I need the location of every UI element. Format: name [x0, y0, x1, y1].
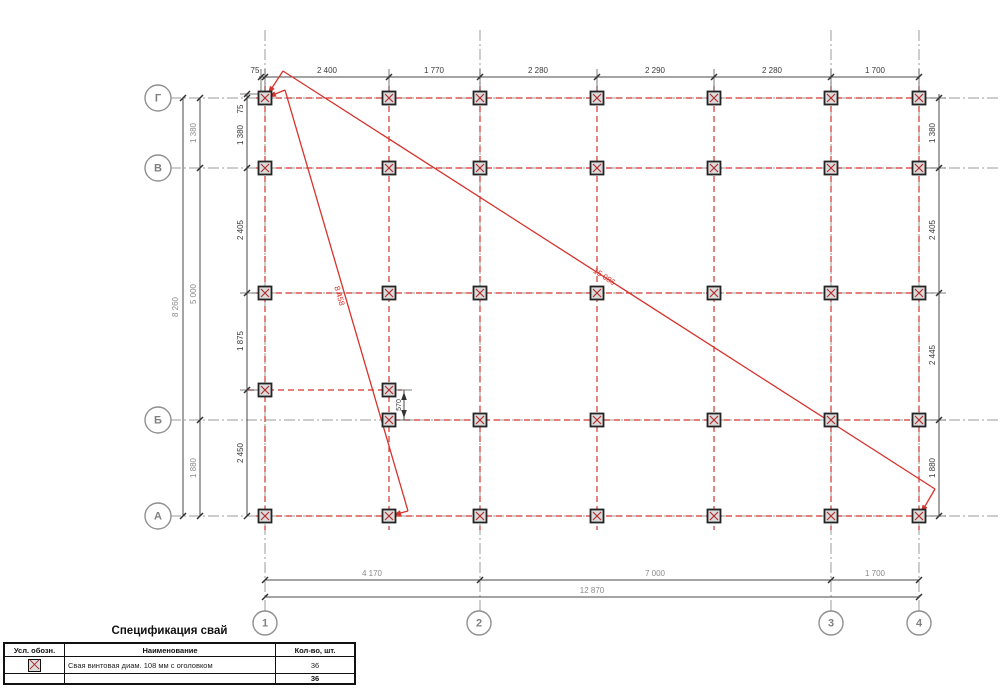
axis-label: А — [154, 510, 162, 522]
spec-total-row: 36 — [4, 674, 355, 685]
dimension-label: 1 380 — [236, 124, 245, 145]
spec-header-symbol: Усл. обозн. — [4, 643, 65, 657]
axis-label: 2 — [476, 617, 482, 629]
dimension-label: 2 280 — [528, 66, 549, 75]
axis-label: 4 — [916, 617, 923, 629]
dimension-label: 75 — [236, 104, 245, 113]
dimension-label: 1 380 — [928, 122, 937, 143]
axis-label: Б — [154, 414, 162, 426]
dimension-label: 570 — [396, 399, 403, 411]
axis-label: В — [154, 162, 162, 174]
dimension-label: 12 870 — [580, 586, 605, 595]
dimension-label: 2 405 — [236, 219, 245, 240]
spec-header-name: Наименование — [65, 643, 276, 657]
dimension-label: 8 458 — [332, 285, 346, 307]
dimension-label: 5 000 — [189, 283, 198, 304]
plan-drawing: ГВБА1234752 4001 7702 2802 2902 2801 700… — [0, 0, 1008, 690]
dimension-label: 2 445 — [928, 344, 937, 365]
dimension-label: 1 770 — [424, 66, 445, 75]
dimension-label: 1 700 — [865, 66, 886, 75]
dimension-label: 1 880 — [928, 457, 937, 478]
spec-header-row: Усл. обозн. Наименование Кол-во, шт. — [4, 643, 355, 657]
dimension-label: 1 875 — [236, 330, 245, 351]
dimension-label: 75 — [251, 66, 260, 75]
dimension-label: 15 086 — [592, 266, 618, 287]
arrowhead — [401, 392, 407, 400]
pile-layout-plan: ГВБА1234752 4001 7702 2802 2902 2801 700… — [0, 0, 1008, 690]
spec-table-title: Спецификация свай — [3, 625, 336, 637]
spec-header-qty: Кол-во, шт. — [276, 643, 356, 657]
dimension-label: 2 290 — [645, 66, 666, 75]
dimension-label: 4 170 — [362, 569, 383, 578]
axis-label: 3 — [828, 617, 834, 629]
dimension-label: 2 450 — [236, 442, 245, 463]
dimension-label: 1 880 — [189, 457, 198, 478]
axis-label: Г — [155, 92, 162, 104]
dimension-label: 2 400 — [317, 66, 338, 75]
dimension-label: 1 700 — [865, 569, 886, 578]
dimension-label: 2 405 — [928, 219, 937, 240]
pile-icon — [28, 659, 41, 672]
pile-specification: Спецификация свай Усл. обозн. Наименован… — [3, 625, 336, 685]
spec-table: Усл. обозн. Наименование Кол-во, шт. Сва… — [3, 642, 356, 685]
dimension-label: 7 000 — [645, 569, 666, 578]
dimension-label: 8 260 — [171, 296, 180, 317]
spec-row: Свая винтовая диам. 108 мм с оголовком 3… — [4, 657, 355, 674]
spec-row-name: Свая винтовая диам. 108 мм с оголовком — [65, 657, 276, 674]
dimension-label: 1 380 — [189, 122, 198, 143]
spec-total-qty: 36 — [276, 674, 356, 685]
dimension-label: 2 280 — [762, 66, 783, 75]
spec-row-qty: 36 — [276, 657, 356, 674]
